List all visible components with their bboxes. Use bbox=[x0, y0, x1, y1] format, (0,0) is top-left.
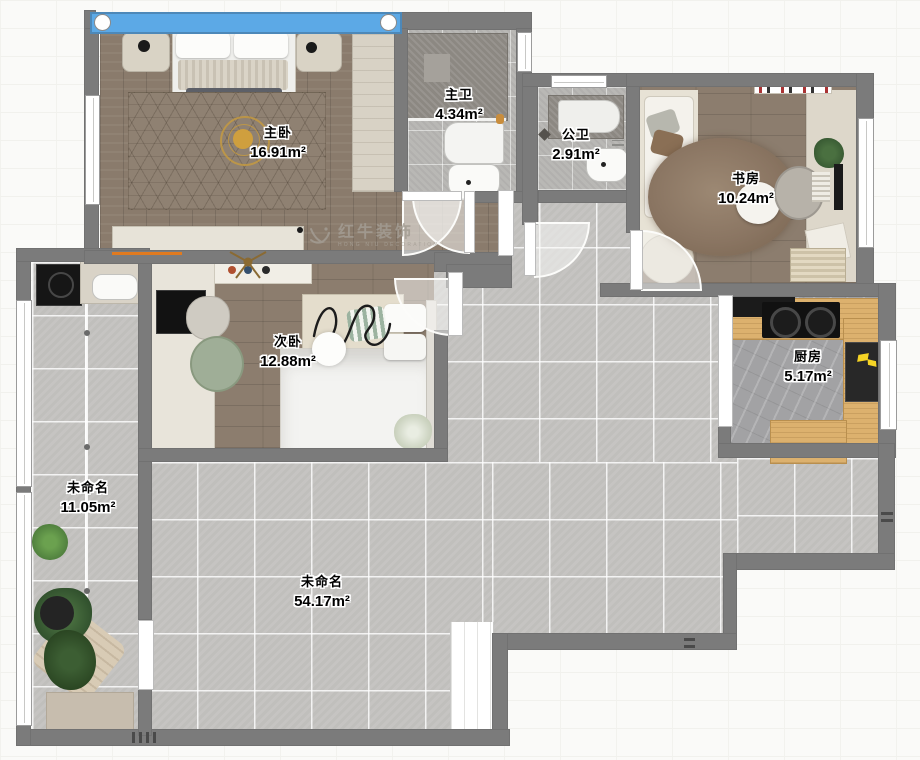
room-label-master-bath[interactable]: 主卫 4.34m² bbox=[435, 84, 483, 123]
room-label-second-bedroom[interactable]: 次卧 12.88m² bbox=[260, 331, 316, 370]
stool-black[interactable] bbox=[40, 596, 74, 630]
room-area: 54.17m² bbox=[294, 593, 350, 610]
room-area: 11.05m² bbox=[60, 499, 115, 516]
room-area: 2.91m² bbox=[552, 146, 600, 163]
burner bbox=[770, 307, 801, 338]
nightstand[interactable] bbox=[296, 32, 342, 72]
wall bbox=[626, 73, 640, 233]
window-bay[interactable] bbox=[450, 622, 494, 730]
wardrobe-column[interactable] bbox=[352, 30, 398, 192]
floor-mat[interactable] bbox=[46, 692, 134, 732]
room-living bbox=[737, 458, 878, 553]
window[interactable] bbox=[551, 75, 607, 88]
laundry-sink[interactable] bbox=[92, 274, 138, 300]
detail-dot bbox=[601, 162, 606, 167]
downlight bbox=[84, 588, 90, 594]
room-name: 主卧 bbox=[250, 122, 306, 141]
nightstand[interactable] bbox=[122, 32, 170, 72]
window[interactable] bbox=[85, 95, 100, 205]
wall bbox=[626, 73, 874, 87]
bed-blanket bbox=[178, 60, 288, 90]
accent-strip bbox=[112, 252, 182, 255]
room-label-study[interactable]: 书房 10.24m² bbox=[718, 168, 774, 207]
room-label-kitchen[interactable]: 厨房 5.17m² bbox=[784, 346, 832, 385]
wall bbox=[138, 254, 152, 620]
door-leaf-master[interactable] bbox=[402, 191, 462, 201]
wall bbox=[492, 633, 508, 743]
lamp bbox=[306, 42, 317, 53]
window[interactable] bbox=[16, 492, 32, 726]
lamp[interactable] bbox=[138, 40, 150, 52]
room-name: 厨房 bbox=[784, 346, 832, 365]
kitchen-opening[interactable] bbox=[718, 295, 733, 427]
room-name: 公卫 bbox=[552, 124, 600, 143]
corridor-door-frame[interactable] bbox=[498, 190, 514, 256]
watermark-brand-text: 红牛装饰 bbox=[338, 225, 439, 241]
window[interactable] bbox=[16, 300, 32, 487]
room-name: 书房 bbox=[718, 168, 774, 187]
room-label-guest-bath[interactable]: 公卫 2.91m² bbox=[552, 124, 600, 163]
bull-logo-icon bbox=[308, 224, 332, 248]
monitor[interactable] bbox=[834, 164, 843, 210]
room-name: 未命名 bbox=[294, 571, 350, 590]
ceiling-lamp bbox=[312, 332, 346, 366]
room-area: 10.24m² bbox=[718, 190, 774, 207]
room-living bbox=[492, 462, 737, 633]
floorplan-canvas: 红牛装饰 HONG NIU DECORATION 主卧 16.91m² 主卫 4… bbox=[0, 0, 920, 760]
room-label-living[interactable]: 未命名 54.17m² bbox=[294, 571, 350, 610]
faucet bbox=[496, 114, 504, 124]
wall-dash-mark bbox=[881, 510, 893, 522]
wall bbox=[522, 73, 538, 225]
wall bbox=[138, 448, 448, 462]
brand-watermark: 红牛装饰 HONG NIU DECORATION bbox=[308, 224, 439, 248]
window[interactable] bbox=[858, 118, 874, 248]
vanity-sink[interactable] bbox=[444, 122, 504, 164]
watermark-sub-text: HONG NIU DECORATION bbox=[338, 243, 439, 248]
wall bbox=[394, 28, 408, 192]
wall bbox=[538, 190, 640, 203]
room-area: 5.17m² bbox=[784, 368, 832, 385]
room-area: 4.34m² bbox=[435, 106, 483, 123]
plant-small[interactable] bbox=[32, 524, 68, 560]
bed-pillows bbox=[176, 32, 230, 58]
shower-tray bbox=[424, 54, 450, 82]
balcony-opening[interactable] bbox=[138, 620, 154, 690]
room-label-master-bedroom[interactable]: 主卧 16.91m² bbox=[250, 122, 306, 161]
keyboard bbox=[812, 172, 830, 202]
wall-dash-mark bbox=[132, 732, 156, 743]
bed-pillows bbox=[234, 32, 288, 58]
burner bbox=[805, 307, 836, 338]
door-leaf-guest-bath[interactable] bbox=[524, 222, 536, 276]
window-handle bbox=[380, 14, 397, 31]
bean-chair[interactable] bbox=[190, 336, 244, 392]
downlight bbox=[84, 330, 90, 336]
window-handle bbox=[94, 14, 111, 31]
wall bbox=[718, 443, 896, 458]
room-name: 未命名 bbox=[60, 477, 115, 496]
room-area: 16.91m² bbox=[250, 144, 306, 161]
door-leaf-second-bedroom[interactable] bbox=[448, 272, 463, 336]
wall bbox=[20, 729, 510, 746]
door-leaf-study[interactable] bbox=[630, 230, 643, 290]
room-area: 12.88m² bbox=[260, 353, 316, 370]
wall bbox=[138, 688, 152, 736]
window-glass-strip[interactable] bbox=[90, 12, 402, 34]
storage-basket[interactable] bbox=[790, 248, 846, 282]
window[interactable] bbox=[880, 340, 897, 430]
wall bbox=[396, 12, 532, 30]
wall bbox=[434, 330, 448, 450]
wall bbox=[878, 443, 895, 570]
wall bbox=[723, 553, 895, 570]
door-leaf-master-bath[interactable] bbox=[464, 191, 475, 253]
downlight bbox=[84, 444, 90, 450]
washer-drum bbox=[48, 272, 74, 298]
plant-fern bbox=[44, 630, 96, 690]
downlight bbox=[297, 227, 303, 233]
room-label-balcony[interactable]: 未命名 11.05m² bbox=[60, 477, 115, 516]
wall bbox=[492, 633, 737, 650]
ceiling-fan-icon[interactable] bbox=[226, 246, 270, 282]
detail-dot bbox=[466, 180, 471, 185]
window[interactable] bbox=[517, 32, 532, 72]
room-name: 主卫 bbox=[435, 84, 483, 103]
wall-dash-mark bbox=[684, 636, 695, 648]
fridge[interactable] bbox=[845, 342, 881, 402]
room-name: 次卧 bbox=[260, 331, 316, 350]
